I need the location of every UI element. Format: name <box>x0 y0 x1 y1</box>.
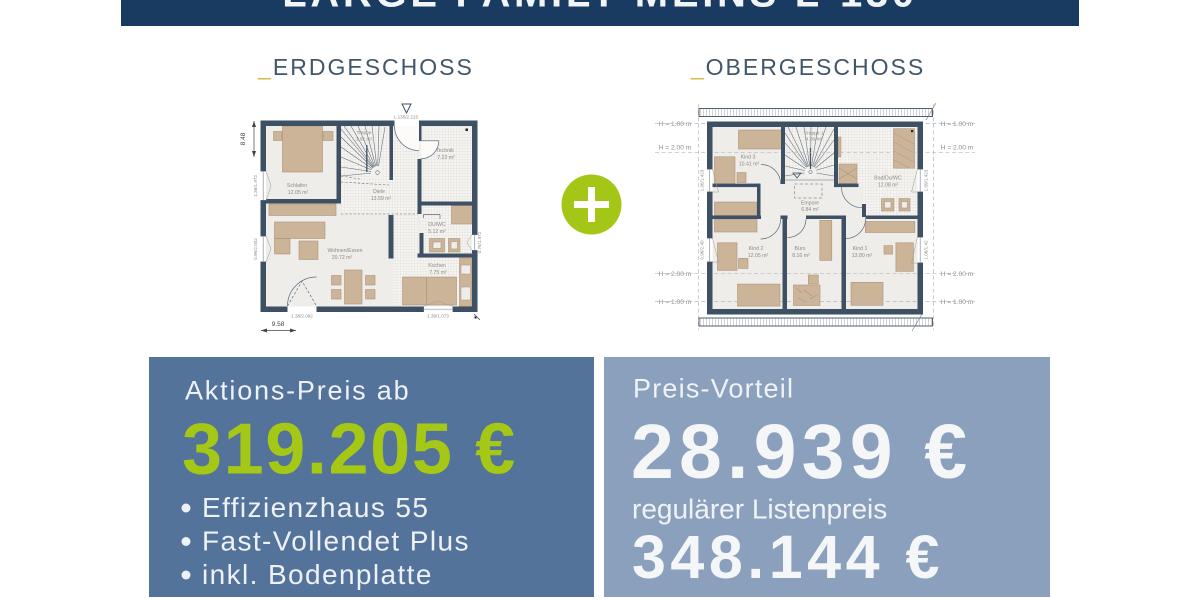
svg-text:5.12 m²: 5.12 m² <box>428 229 446 235</box>
svg-text:20.72 m²: 20.72 m² <box>332 255 353 261</box>
svg-text:12.05 m²: 12.05 m² <box>748 253 769 259</box>
svg-text:H = 1.00 m: H = 1.00 m <box>941 121 974 128</box>
svg-text:regulärer Listenpreis: regulärer Listenpreis <box>632 494 887 525</box>
svg-text:12.05 m²: 12.05 m² <box>288 190 309 196</box>
svg-text:1.09/1.423: 1.09/1.423 <box>924 169 929 191</box>
svg-text:1.91 m²: 1.91 m² <box>356 137 373 143</box>
svg-text:13.59 m²: 13.59 m² <box>371 196 392 202</box>
svg-text:10.41 m²: 10.41 m² <box>739 162 760 168</box>
svg-text:Kind 1: Kind 1 <box>853 246 868 252</box>
svg-text:6.84 m²: 6.84 m² <box>801 207 819 213</box>
svg-text:7.23 m²: 7.23 m² <box>437 155 455 161</box>
svg-text:Effizienzhaus 55: Effizienzhaus 55 <box>202 492 429 523</box>
svg-text:1.06/1.423: 1.06/1.423 <box>700 169 705 191</box>
svg-text:9.58: 9.58 <box>272 321 285 328</box>
svg-text:1.06/1.42: 1.06/1.42 <box>924 240 929 260</box>
svg-text:DU/WC: DU/WC <box>428 222 446 228</box>
svg-text:Fast-Vollendet Plus: Fast-Vollendet Plus <box>202 526 470 557</box>
svg-text:Aktions-Preis ab: Aktions-Preis ab <box>185 376 410 406</box>
svg-text:L 135/2.215: L 135/2.215 <box>394 115 419 120</box>
svg-text:1.36/1.972: 1.36/1.972 <box>253 175 258 197</box>
svg-text:8.48: 8.48 <box>240 132 247 145</box>
svg-text:1.38/1.073: 1.38/1.073 <box>427 314 449 319</box>
svg-text:Technik: Technik <box>436 148 454 154</box>
svg-text:Treppe: Treppe <box>356 130 371 136</box>
svg-text:H = 2.00 m: H = 2.00 m <box>941 145 974 152</box>
svg-text:inkl. Bodenplatte: inkl. Bodenplatte <box>202 559 433 590</box>
svg-text:319.205 €: 319.205 € <box>182 410 517 490</box>
svg-text:Diele: Diele <box>373 189 385 195</box>
svg-text:0.96/2.40: 0.96/2.40 <box>700 240 705 260</box>
svg-text:8.16 m²: 8.16 m² <box>792 253 810 259</box>
svg-text:Wohnen/Essen: Wohnen/Essen <box>327 248 362 254</box>
svg-text:H = 1.00 m: H = 1.00 m <box>659 121 692 128</box>
svg-text:H = 1.00 m: H = 1.00 m <box>941 299 974 306</box>
svg-text:LARGE FAMILY MEINS L-130: LARGE FAMILY MEINS L-130 <box>282 0 918 16</box>
svg-text:0.96/2.002: 0.96/2.002 <box>253 238 258 260</box>
svg-text:Treppe 1: Treppe 1 <box>804 131 823 137</box>
svg-text:Schlafen: Schlafen <box>287 183 307 189</box>
svg-text:Kind 2: Kind 2 <box>749 246 764 252</box>
svg-text:Bad/Du/WC: Bad/Du/WC <box>874 176 902 182</box>
svg-text:4.39 m²: 4.39 m² <box>806 137 823 143</box>
svg-text:0.76/1.972: 0.76/1.972 <box>477 231 482 253</box>
svg-text:28.939 €: 28.939 € <box>631 409 972 495</box>
svg-text:12.08 m²: 12.08 m² <box>878 183 899 189</box>
svg-text:H = 2.00 m: H = 2.00 m <box>659 145 692 152</box>
svg-text:Empore: Empore <box>801 201 819 207</box>
svg-text:Kochen: Kochen <box>428 263 446 269</box>
svg-text:348.144 €: 348.144 € <box>632 523 944 591</box>
svg-text:H = 2.00 m: H = 2.00 m <box>659 271 692 278</box>
svg-text:1.38/2.092: 1.38/2.092 <box>291 314 313 319</box>
svg-text:7.75 m²: 7.75 m² <box>429 270 447 276</box>
svg-text:H = 1.00 m: H = 1.00 m <box>659 299 692 306</box>
svg-text:Büro: Büro <box>795 246 806 252</box>
svg-text:H = 2.00 m: H = 2.00 m <box>941 271 974 278</box>
svg-text:13.80 m²: 13.80 m² <box>852 253 873 259</box>
svg-text:Preis-Vorteil: Preis-Vorteil <box>633 374 794 404</box>
svg-text:Kind 3: Kind 3 <box>741 155 756 161</box>
